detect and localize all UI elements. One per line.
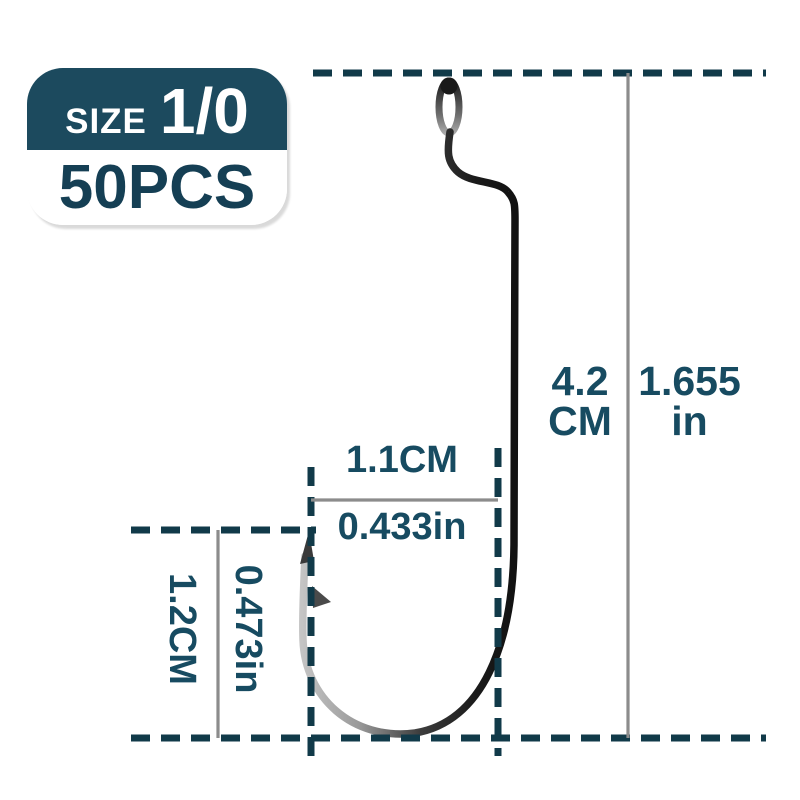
size-badge-bottom: 50PCS <box>27 150 287 225</box>
throat-depth-in-label: 0.473in <box>227 549 267 709</box>
throat-depth-cm-label: 1.2CM <box>161 559 201 699</box>
size-value: 1/0 <box>160 74 249 148</box>
size-label: SIZE <box>65 102 147 142</box>
total-length-cm-unit: CM <box>538 401 622 441</box>
quantity-label: 50PCS <box>59 152 255 223</box>
total-length-cm-label: 4.2 CM <box>538 361 622 441</box>
total-length-in-label: 1.655 in <box>632 361 747 441</box>
size-badge-top: SIZE 1/0 <box>27 68 287 150</box>
gape-width-in-label: 0.433in <box>306 508 498 548</box>
hook-eye-top <box>441 78 458 95</box>
hook-body <box>303 132 515 734</box>
gape-width-cm-label: 1.1CM <box>306 441 498 481</box>
product-dimension-diagram: SIZE 1/0 50PCS 1.1CM 0.433in 4.2 CM 1.65… <box>0 0 800 800</box>
total-length-in-value: 1.655 <box>632 361 747 401</box>
size-badge: SIZE 1/0 50PCS <box>27 68 287 225</box>
hook-barb <box>312 586 331 608</box>
hook-illustration <box>300 78 515 734</box>
total-length-cm-value: 4.2 <box>538 361 622 401</box>
total-length-in-unit: in <box>632 401 747 441</box>
